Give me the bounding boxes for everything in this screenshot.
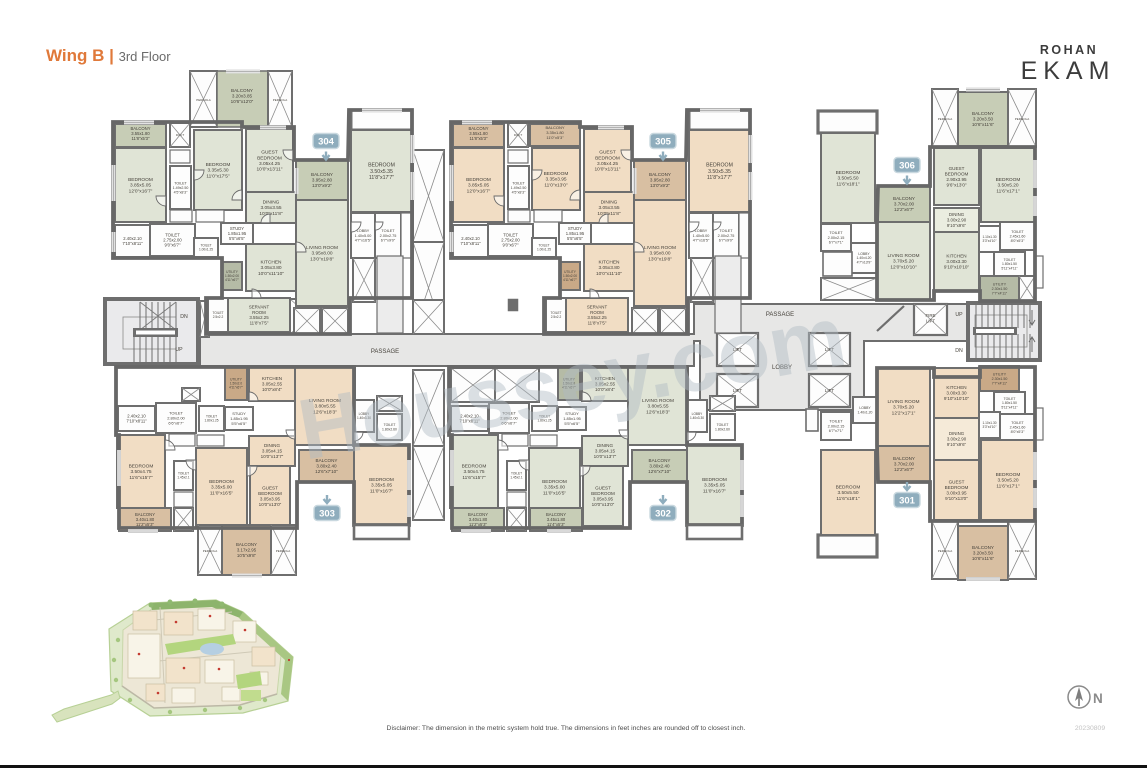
svg-text:Disclaimer: The dimension in t: Disclaimer: The dimension in the metric … (387, 725, 746, 732)
svg-text:PERGOLA: PERGOLA (1015, 549, 1030, 553)
svg-text:TOILET2.45x1.608'0"x5'3": TOILET2.45x1.608'0"x5'3" (1010, 230, 1026, 243)
svg-text:BEDROOM3.50x4.7511'6"x15'7": BEDROOM3.50x4.7511'6"x15'7" (129, 463, 154, 480)
svg-text:BEDROOM3.35x5.0511'0"x16'7": BEDROOM3.35x5.0511'0"x16'7" (702, 477, 727, 494)
svg-text:TOILET2.5x2.2: TOILET2.5x2.2 (550, 311, 561, 319)
svg-text:BALCONY3.95x2.8013'0"x9'2": BALCONY3.95x2.8013'0"x9'2" (311, 172, 333, 188)
svg-text:TOILET2.75x2.009'0"x6'7": TOILET2.75x2.009'0"x6'7" (501, 232, 520, 247)
svg-text:BEDROOM3.50x5.5011'6"x18'1": BEDROOM3.50x5.5011'6"x18'1" (836, 170, 861, 187)
svg-text:KITCHEN3.00x3.309'10"x10'10": KITCHEN3.00x3.309'10"x10'10" (944, 254, 970, 270)
svg-text:PERGOLA: PERGOLA (938, 549, 953, 553)
svg-text:DN: DN (180, 314, 188, 320)
svg-text:DUCT: DUCT (514, 133, 522, 137)
svg-text:BEDROOM3.35x5.3011'0"x17'5": BEDROOM3.35x5.3011'0"x17'5" (206, 162, 231, 179)
svg-text:BALCONY3.80x2.4012'6"x7'10": BALCONY3.80x2.4012'6"x7'10" (648, 458, 671, 474)
svg-text:1.10x1.303'3"x4'10": 1.10x1.303'3"x4'10" (982, 235, 996, 243)
svg-text:PERGOLA: PERGOLA (276, 549, 291, 553)
svg-text:BALCONY3.95x2.8013'0"x9'2": BALCONY3.95x2.8013'0"x9'2" (649, 172, 671, 188)
svg-text:BALCONY3.70x2.0012'2"x6'7": BALCONY3.70x2.0012'2"x6'7" (893, 196, 915, 212)
svg-text:BALCONY3.55x1.8011'8"x5'3": BALCONY3.55x1.8011'8"x5'3" (130, 126, 150, 141)
svg-text:BEDROOM3.85x5.0512'0"x16'7": BEDROOM3.85x5.0512'0"x16'7" (466, 177, 491, 194)
svg-text:N: N (1093, 691, 1103, 706)
svg-text:TOILET1.00x1.25: TOILET1.00x1.25 (537, 244, 551, 252)
svg-text:BEDROOM3.35x5.0011'0"x16'5": BEDROOM3.35x5.0011'0"x16'5" (542, 479, 567, 496)
svg-text:SERVANTROOM3.55x2.2511'8"x7'5": SERVANTROOM3.55x2.2511'8"x7'5" (249, 305, 270, 326)
svg-text:303: 303 (319, 509, 335, 520)
svg-text:KITCHEN3.05x2.5510'0"x8'4": KITCHEN3.05x2.5510'0"x8'4" (262, 376, 283, 392)
svg-text:UP: UP (175, 347, 183, 353)
svg-text:TOILET1.49x2.504'5"x8'3": TOILET1.49x2.504'5"x8'3" (173, 181, 189, 194)
svg-text:20230809: 20230809 (1075, 725, 1105, 732)
svg-text:EKAM: EKAM (1021, 57, 1116, 85)
svg-text:PERGOLA: PERGOLA (938, 117, 953, 121)
svg-text:BEDROOM3.35x5.0011'0"x16'5": BEDROOM3.35x5.0011'0"x16'5" (209, 479, 234, 496)
svg-text:DINING3.00x2.909'10"x9'6": DINING3.00x2.909'10"x9'6" (947, 431, 967, 447)
svg-text:SERVANTROOM3.55x2.2511'8"x7'5": SERVANTROOM3.55x2.2511'8"x7'5" (587, 305, 608, 326)
svg-text:DINING3.00x2.909'10"x9'6": DINING3.00x2.909'10"x9'6" (947, 212, 967, 228)
svg-text:2.40x2.107'10"x8'11": 2.40x2.107'10"x8'11" (126, 413, 147, 423)
svg-text:BALCONY3.17x2.9510'5"x9'8": BALCONY3.17x2.9510'5"x9'8" (236, 542, 257, 558)
svg-text:STUDY1.85x1.955'5"x6'5": STUDY1.85x1.955'5"x6'5" (228, 226, 247, 241)
svg-text:BEDROOM3.35x5.0511'0"x16'7": BEDROOM3.35x5.0511'0"x16'7" (369, 477, 394, 494)
svg-text:KITCHEN3.05x3.8010'0"x11'10": KITCHEN3.05x3.8010'0"x11'10" (258, 259, 284, 276)
svg-text:BALCONY3.70x2.0012'2"x6'7": BALCONY3.70x2.0012'2"x6'7" (893, 456, 915, 472)
svg-text:FIRELIFT: FIRELIFT (925, 313, 935, 323)
svg-text:BEDROOM3.50x5.5011'6"x18'1": BEDROOM3.50x5.5011'6"x18'1" (836, 484, 861, 501)
svg-text:UTILITY1.50x2.04'11"x6'7": UTILITY1.50x2.04'11"x6'7" (229, 378, 243, 390)
svg-text:LIFT: LIFT (825, 388, 835, 393)
svg-text:TOILET2.5x2.2: TOILET2.5x2.2 (212, 311, 223, 319)
svg-text:KITCHEN3.05x3.8010'0"x11'10": KITCHEN3.05x3.8010'0"x11'10" (596, 259, 622, 276)
svg-text:BALCONY3.40x1.8011'2"x5'3": BALCONY3.40x1.8011'2"x5'3" (135, 512, 155, 527)
svg-text:1.10x1.303'3"x4'10": 1.10x1.303'3"x4'10" (982, 421, 996, 429)
svg-text:BALCONY3.20x3.8510'6"x12'0": BALCONY3.20x3.8510'6"x12'0" (231, 88, 254, 104)
svg-text:TOILET2.80x2.006'6"x6'7": TOILET2.80x2.006'6"x6'7" (167, 411, 185, 426)
svg-text:PERGOLA: PERGOLA (203, 549, 218, 553)
svg-text:TOILET2.00x2.756'7"x9'0": TOILET2.00x2.756'7"x9'0" (718, 229, 735, 242)
svg-text:UTILITY2.30x1.507'7"x4'11": UTILITY2.30x1.507'7"x4'11" (992, 282, 1008, 295)
svg-text:BEDROOM3.85x5.0512'0"x16'7": BEDROOM3.85x5.0512'0"x16'7" (128, 177, 153, 194)
svg-text:TOILET1.49x2.504'5"x8'3": TOILET1.49x2.504'5"x8'3" (511, 181, 527, 194)
svg-text:BALCONY3.45x1.8011'4"x5'3": BALCONY3.45x1.8011'4"x5'3" (546, 512, 566, 527)
svg-text:BEDROOM3.50x5.3511'8"x17'7": BEDROOM3.50x5.3511'8"x17'7" (706, 163, 733, 181)
svg-text:LOBBY1.40x1.20: LOBBY1.40x1.20 (858, 406, 873, 414)
svg-text:306: 306 (899, 161, 915, 172)
svg-text:305: 305 (655, 137, 672, 148)
svg-text:TOILET1.80x1.25: TOILET1.80x1.25 (204, 415, 218, 423)
svg-text:TOILET2.75x2.009'0"x6'7": TOILET2.75x2.009'0"x6'7" (163, 232, 182, 247)
svg-text:UTILITY2.30x1.507'7"x4'11": UTILITY2.30x1.507'7"x4'11" (992, 372, 1008, 385)
svg-text:BEDROOM3.50x5.2011'6"x17'1": BEDROOM3.50x5.2011'6"x17'1" (996, 472, 1021, 489)
svg-text:UP: UP (955, 312, 963, 318)
svg-text:PERGOLA: PERGOLA (273, 98, 288, 102)
svg-text:TOILET1.80x2.60: TOILET1.80x2.60 (715, 423, 730, 431)
svg-text:PERGOLA: PERGOLA (1015, 117, 1030, 121)
svg-text:Wing B | 3rd Floor: Wing B | 3rd Floor (46, 46, 171, 65)
svg-text:302: 302 (655, 509, 671, 520)
svg-text:ROHAN: ROHAN (1040, 43, 1098, 57)
svg-text:UTILITY1.50x2.004'11"x6'7": UTILITY1.50x2.004'11"x6'7" (225, 270, 239, 282)
svg-text:DINING3.05x3.5510'0"x11'8": DINING3.05x3.5510'0"x11'8" (259, 199, 283, 216)
svg-text:BEDROOM3.50x5.2011'6"x17'1": BEDROOM3.50x5.2011'6"x17'1" (996, 177, 1021, 194)
svg-text:KITCHEN3.00x3.309'10"x10'10": KITCHEN3.00x3.309'10"x10'10" (944, 385, 970, 401)
svg-text:301: 301 (899, 496, 916, 507)
svg-text:BALCONY3.20x3.5010'6"x11'6": BALCONY3.20x3.5010'6"x11'6" (972, 545, 995, 561)
svg-text:TOILET2.00x2.156'7"x7'1": TOILET2.00x2.156'7"x7'1" (828, 420, 845, 433)
svg-text:BALCONY3.35x1.8011'0"x5'3": BALCONY3.35x1.8011'0"x5'3" (545, 125, 564, 140)
svg-text:PASSAGE: PASSAGE (371, 349, 399, 355)
svg-text:UTILITY1.50x2.004'11"x6'7": UTILITY1.50x2.004'11"x6'7" (563, 270, 577, 282)
svg-text:BALCONY3.40x1.8011'2"x5'3": BALCONY3.40x1.8011'2"x5'3" (468, 512, 488, 527)
svg-text:2.40x2.107'10"x8'11": 2.40x2.107'10"x8'11" (460, 236, 481, 246)
svg-text:DINING3.05x3.5510'0"x11'8": DINING3.05x3.5510'0"x11'8" (597, 199, 621, 216)
svg-text:BEDROOM3.35x3.9511'0"x13'0": BEDROOM3.35x3.9511'0"x13'0" (544, 171, 569, 188)
svg-text:BALCONY3.55x1.8011'8"x5'3": BALCONY3.55x1.8011'8"x5'3" (468, 126, 488, 141)
svg-text:DUCT: DUCT (176, 133, 184, 137)
svg-text:DN: DN (955, 348, 963, 354)
svg-text:TOILET2.00x2.756'7"x9'0": TOILET2.00x2.756'7"x9'0" (380, 229, 397, 242)
svg-text:LOBBY1.40x3.30: LOBBY1.40x3.30 (690, 412, 704, 420)
svg-text:2.40x2.107'10"x8'11": 2.40x2.107'10"x8'11" (122, 236, 143, 246)
svg-text:TOILET2.45x1.608'0"x5'3": TOILET2.45x1.608'0"x5'3" (1010, 421, 1026, 434)
svg-text:304: 304 (318, 137, 335, 148)
svg-text:STUDY1.85x1.955'5"x6'5": STUDY1.85x1.955'5"x6'5" (566, 226, 585, 241)
svg-text:BEDROOM3.50x4.7511'6"x15'7": BEDROOM3.50x4.7511'6"x15'7" (462, 463, 487, 480)
svg-text:PERGOLA: PERGOLA (196, 98, 211, 102)
svg-text:BALCONY3.20x3.5010'6"x11'6": BALCONY3.20x3.5010'6"x11'6" (972, 111, 995, 127)
svg-text:BEDROOM3.50x5.3511'8"x17'7": BEDROOM3.50x5.3511'8"x17'7" (368, 163, 395, 181)
svg-text:TOILET1.45x2.1: TOILET1.45x2.1 (177, 472, 189, 480)
svg-text:TOILET1.45x2.1: TOILET1.45x2.1 (510, 472, 522, 480)
svg-text:TOILET2.00x2.156'7"x7'1": TOILET2.00x2.156'7"x7'1" (828, 231, 845, 244)
svg-text:TOILET1.00x1.25: TOILET1.00x1.25 (199, 244, 213, 252)
